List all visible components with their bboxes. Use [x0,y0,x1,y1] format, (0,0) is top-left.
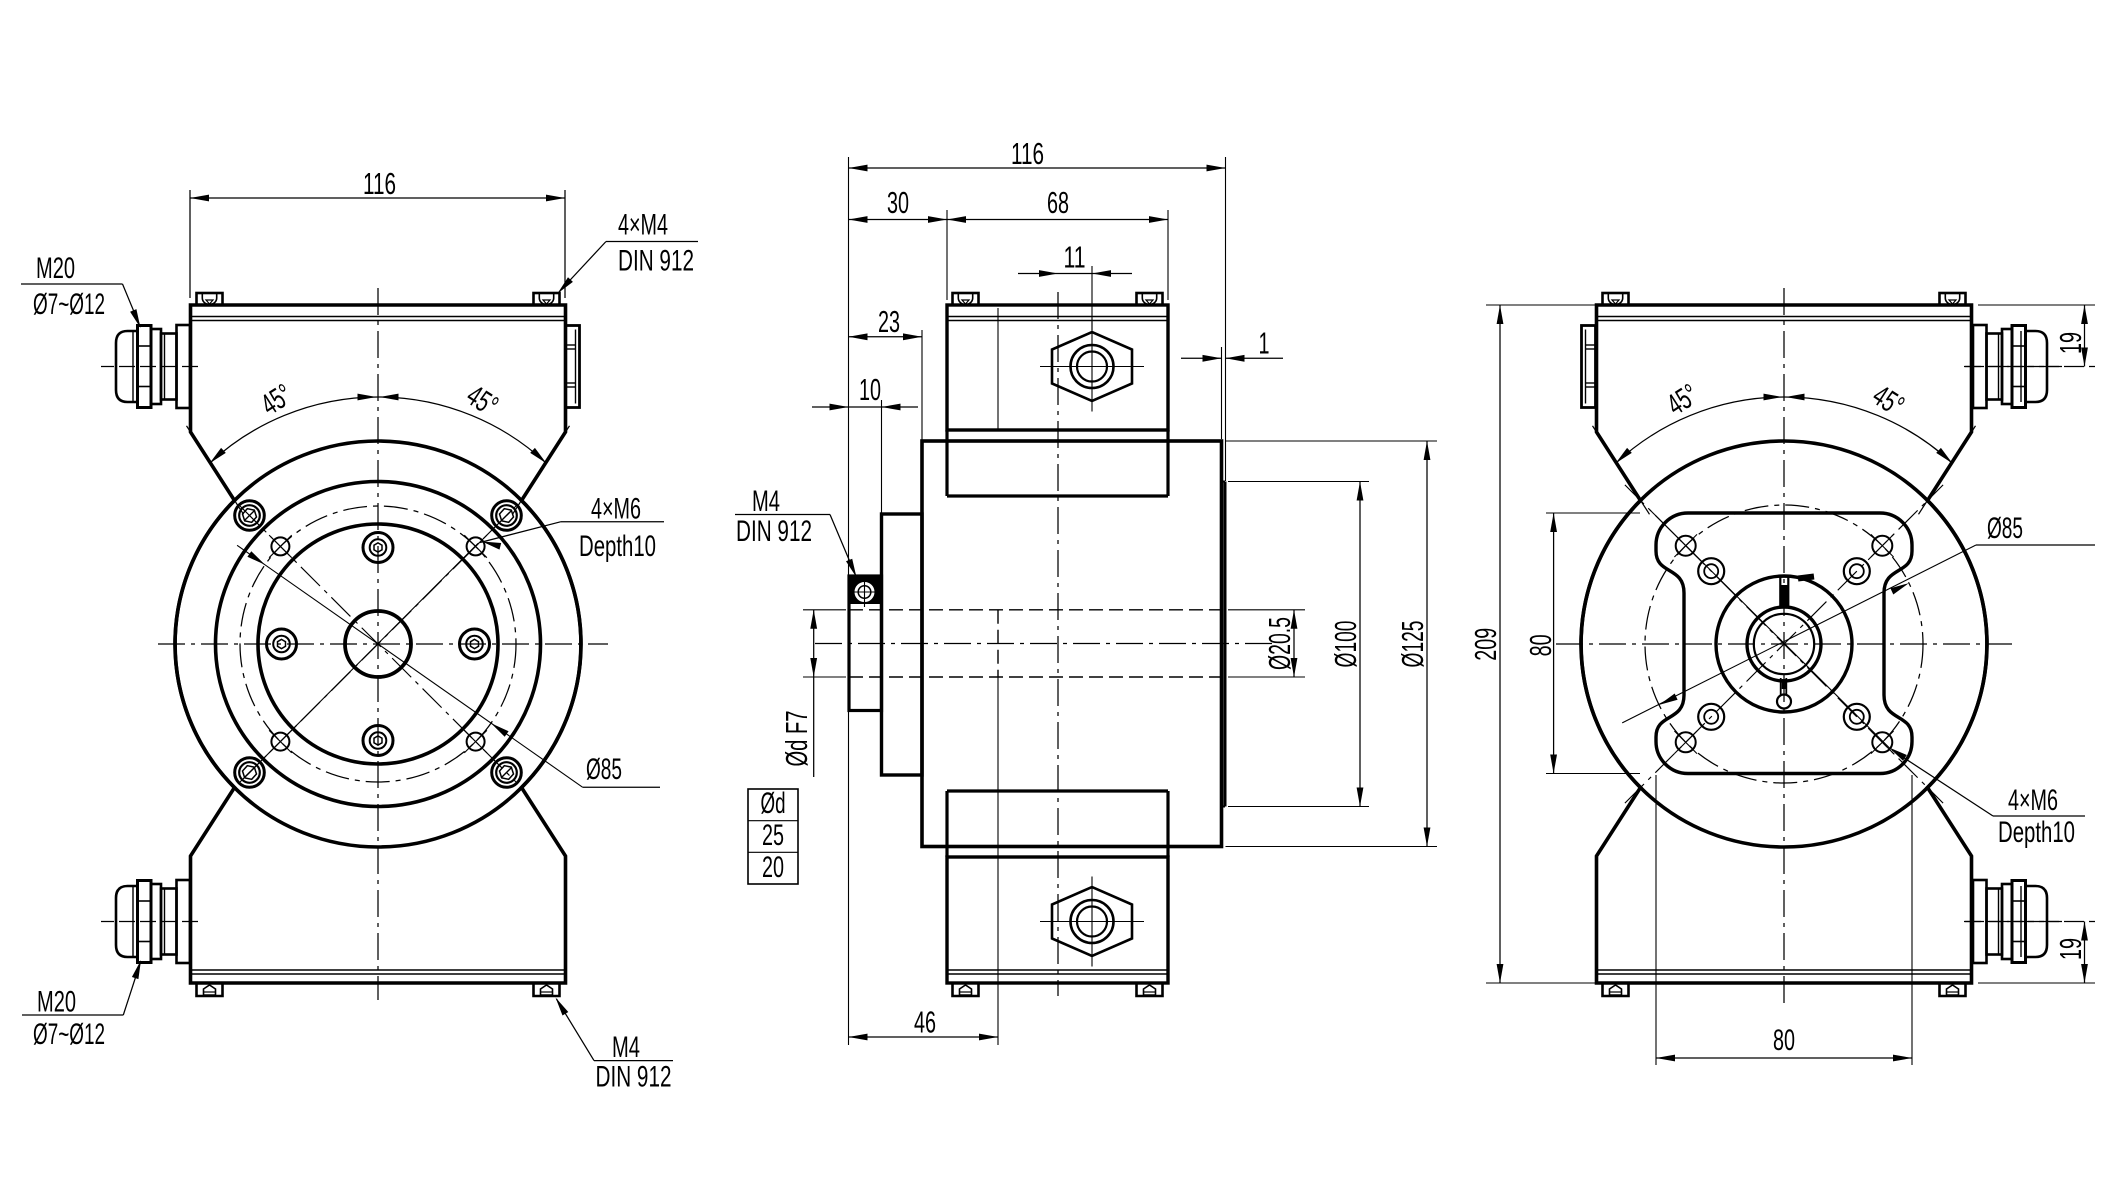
svg-text:DIN 912: DIN 912 [618,245,694,278]
svg-text:Ø100: Ø100 [1328,621,1363,668]
svg-text:80: 80 [1523,634,1558,656]
svg-text:116: 116 [1011,136,1044,171]
svg-text:Ø7~Ø12: Ø7~Ø12 [33,288,105,321]
svg-text:Ø85: Ø85 [586,753,622,786]
svg-text:DIN 912: DIN 912 [596,1061,672,1094]
svg-text:80: 80 [1773,1024,1795,1057]
svg-text:4×M6: 4×M6 [2008,784,2058,817]
svg-text:DIN 912: DIN 912 [736,515,812,548]
svg-text:23: 23 [878,304,900,339]
svg-text:46: 46 [914,1005,936,1040]
svg-text:M4: M4 [612,1031,640,1064]
svg-text:M4: M4 [752,485,780,518]
svg-text:19: 19 [2053,332,2088,354]
svg-text:209: 209 [1468,628,1503,661]
svg-text:11: 11 [1064,240,1086,275]
svg-text:Ød: Ød [761,787,786,820]
svg-text:Ø7~Ø12: Ø7~Ø12 [33,1018,105,1051]
svg-text:Ø20.5: Ø20.5 [1262,617,1297,670]
svg-text:116: 116 [363,166,396,201]
svg-text:10: 10 [859,372,881,407]
svg-text:25: 25 [762,819,784,852]
svg-text:M20: M20 [37,986,76,1019]
svg-text:M20: M20 [36,252,75,285]
svg-text:Depth10: Depth10 [1998,816,2075,849]
svg-text:30: 30 [887,185,909,220]
svg-text:68: 68 [1047,185,1069,220]
svg-text:Ød F7: Ød F7 [779,711,814,767]
svg-text:Ø125: Ø125 [1395,621,1430,668]
svg-text:4×M4: 4×M4 [618,209,668,242]
svg-text:4×M6: 4×M6 [591,493,641,526]
svg-text:19: 19 [2053,938,2088,960]
svg-text:Depth10: Depth10 [579,530,656,563]
svg-text:1: 1 [1259,326,1270,361]
svg-text:20: 20 [762,851,784,884]
svg-text:Ø85: Ø85 [1987,512,2023,545]
